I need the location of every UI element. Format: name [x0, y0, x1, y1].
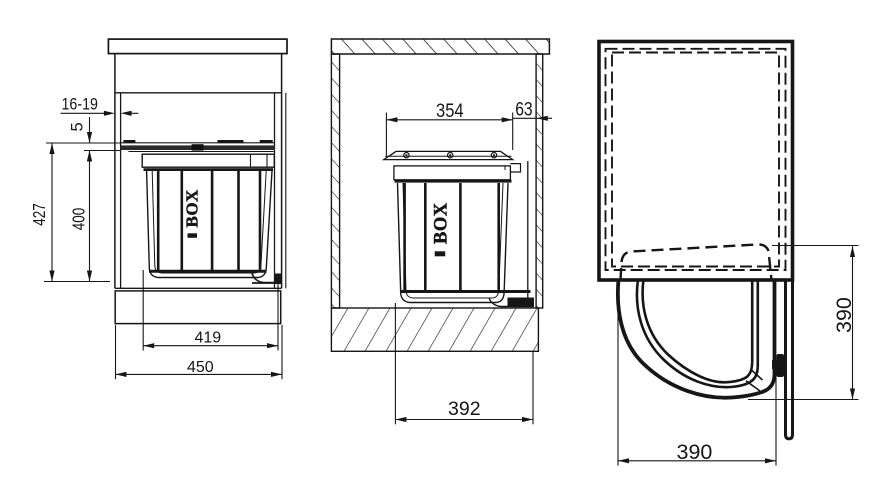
svg-text:419: 419: [195, 330, 222, 347]
svg-text:16-19: 16-19: [62, 96, 99, 114]
svg-text:63: 63: [515, 99, 533, 120]
svg-text:450: 450: [187, 359, 214, 376]
svg-text:BOX: BOX: [432, 202, 452, 244]
svg-text:354: 354: [436, 101, 464, 122]
svg-text:400: 400: [69, 208, 89, 231]
svg-text:392: 392: [448, 398, 481, 420]
svg-text:5: 5: [68, 122, 86, 131]
svg-text:427: 427: [29, 203, 49, 226]
svg-text:BOX: BOX: [183, 189, 202, 228]
